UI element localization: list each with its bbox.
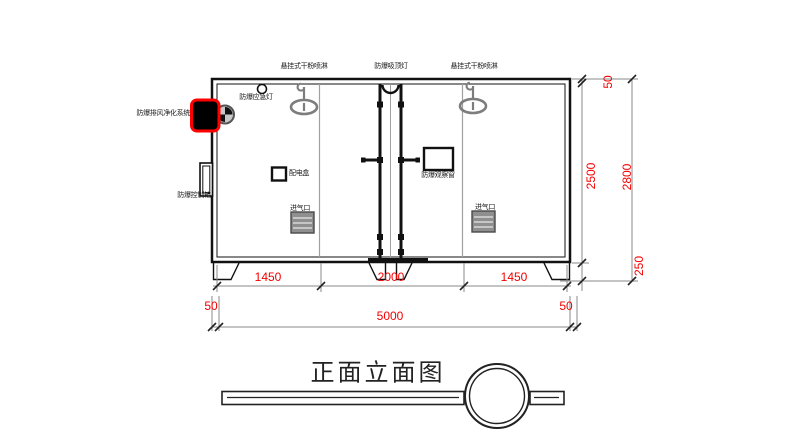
dim-seg-left: 1450 [255, 271, 282, 283]
control-box-label: 防爆控制箱 [177, 192, 211, 199]
air-inlet-right-label: 进气口 [475, 204, 495, 211]
power-box-label: 配电盒 [289, 170, 309, 177]
sprinkler-right-label: 悬挂式干粉喷淋 [451, 63, 498, 70]
dim-offset-left: 50 [204, 300, 217, 312]
observation-window [424, 148, 453, 170]
dim-offset-right: 50 [559, 300, 572, 312]
sprinkler-left-label: 悬挂式干粉喷淋 [281, 63, 328, 70]
dim-base-height: 250 [633, 256, 645, 276]
dim-inner-height: 2500 [585, 163, 597, 190]
drawing-title: 正面立面图 [311, 353, 446, 388]
air-inlet-left-label: 进气口 [290, 205, 310, 212]
dim-seg-right: 1450 [501, 271, 528, 283]
dim-seg-center: 2000 [378, 271, 405, 283]
air-inlet-right-vent [472, 211, 495, 232]
title-balloon [465, 364, 529, 428]
dim-overall-height: 2800 [621, 164, 633, 191]
observation-window-label: 防爆观察窗 [421, 172, 455, 179]
emergency-light-label: 防爆应急灯 [239, 94, 273, 101]
exhaust-purifier-label: 防爆排风净化系统 [136, 110, 190, 117]
emergency-light-icon [258, 85, 267, 94]
ceiling-light-label: 防爆吸顶灯 [374, 63, 408, 70]
air-inlet-left-vent [291, 212, 314, 233]
exhaust-purification-unit [192, 100, 220, 131]
dim-overall-width: 5000 [377, 310, 404, 322]
elevation-drawing: 悬挂式干粉喷淋 防爆吸顶灯 悬挂式干粉喷淋 防爆应急灯 防爆排风净化系统 防爆控… [0, 0, 800, 445]
dim-right-top: 50 [602, 75, 614, 88]
power-box [272, 168, 286, 181]
